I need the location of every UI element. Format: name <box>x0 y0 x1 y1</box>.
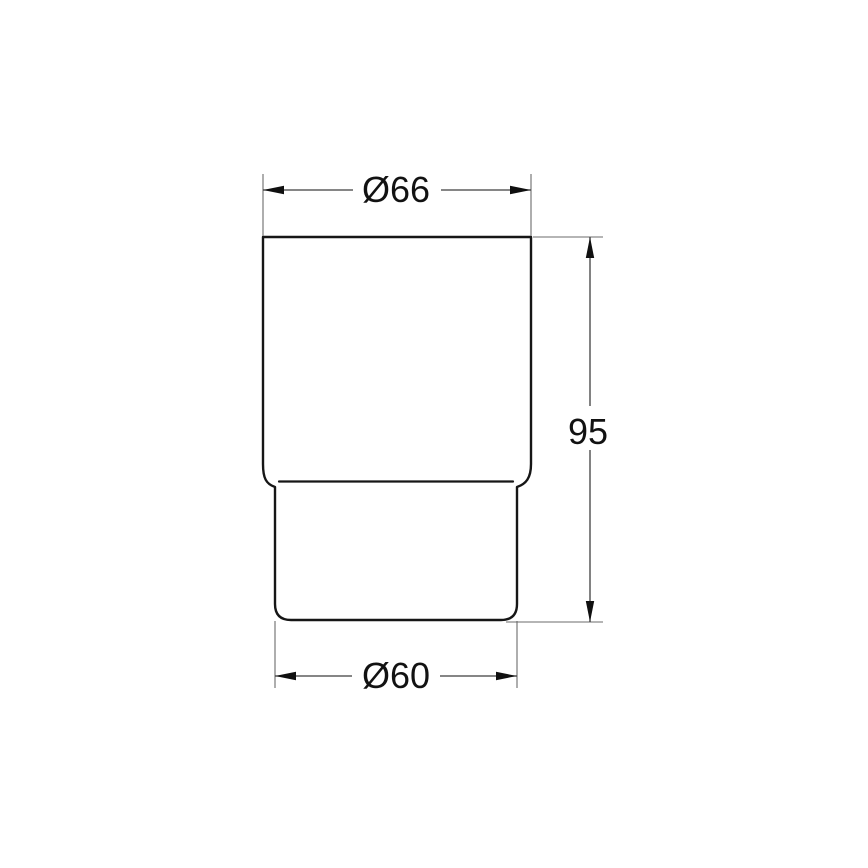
arrow-right-icon <box>510 186 531 194</box>
part-outline <box>263 237 531 620</box>
arrow-left-icon <box>263 186 284 194</box>
dimension-label-top-diameter: Ø66 <box>362 169 430 210</box>
technical-drawing-canvas: Ø66 95 Ø60 <box>0 0 868 868</box>
arrow-down-icon <box>586 601 594 622</box>
arrow-right-icon <box>496 672 517 680</box>
arrow-left-icon <box>275 672 296 680</box>
dimension-height: 95 <box>506 237 608 622</box>
arrow-up-icon <box>586 237 594 258</box>
dimension-label-bottom-diameter: Ø60 <box>362 655 430 696</box>
drawing-page: Ø66 95 Ø60 <box>0 0 868 868</box>
part-profile <box>263 237 531 620</box>
dimension-bottom-diameter: Ø60 <box>275 621 517 696</box>
dimension-top-diameter: Ø66 <box>263 169 531 236</box>
dimension-label-height: 95 <box>568 411 608 452</box>
